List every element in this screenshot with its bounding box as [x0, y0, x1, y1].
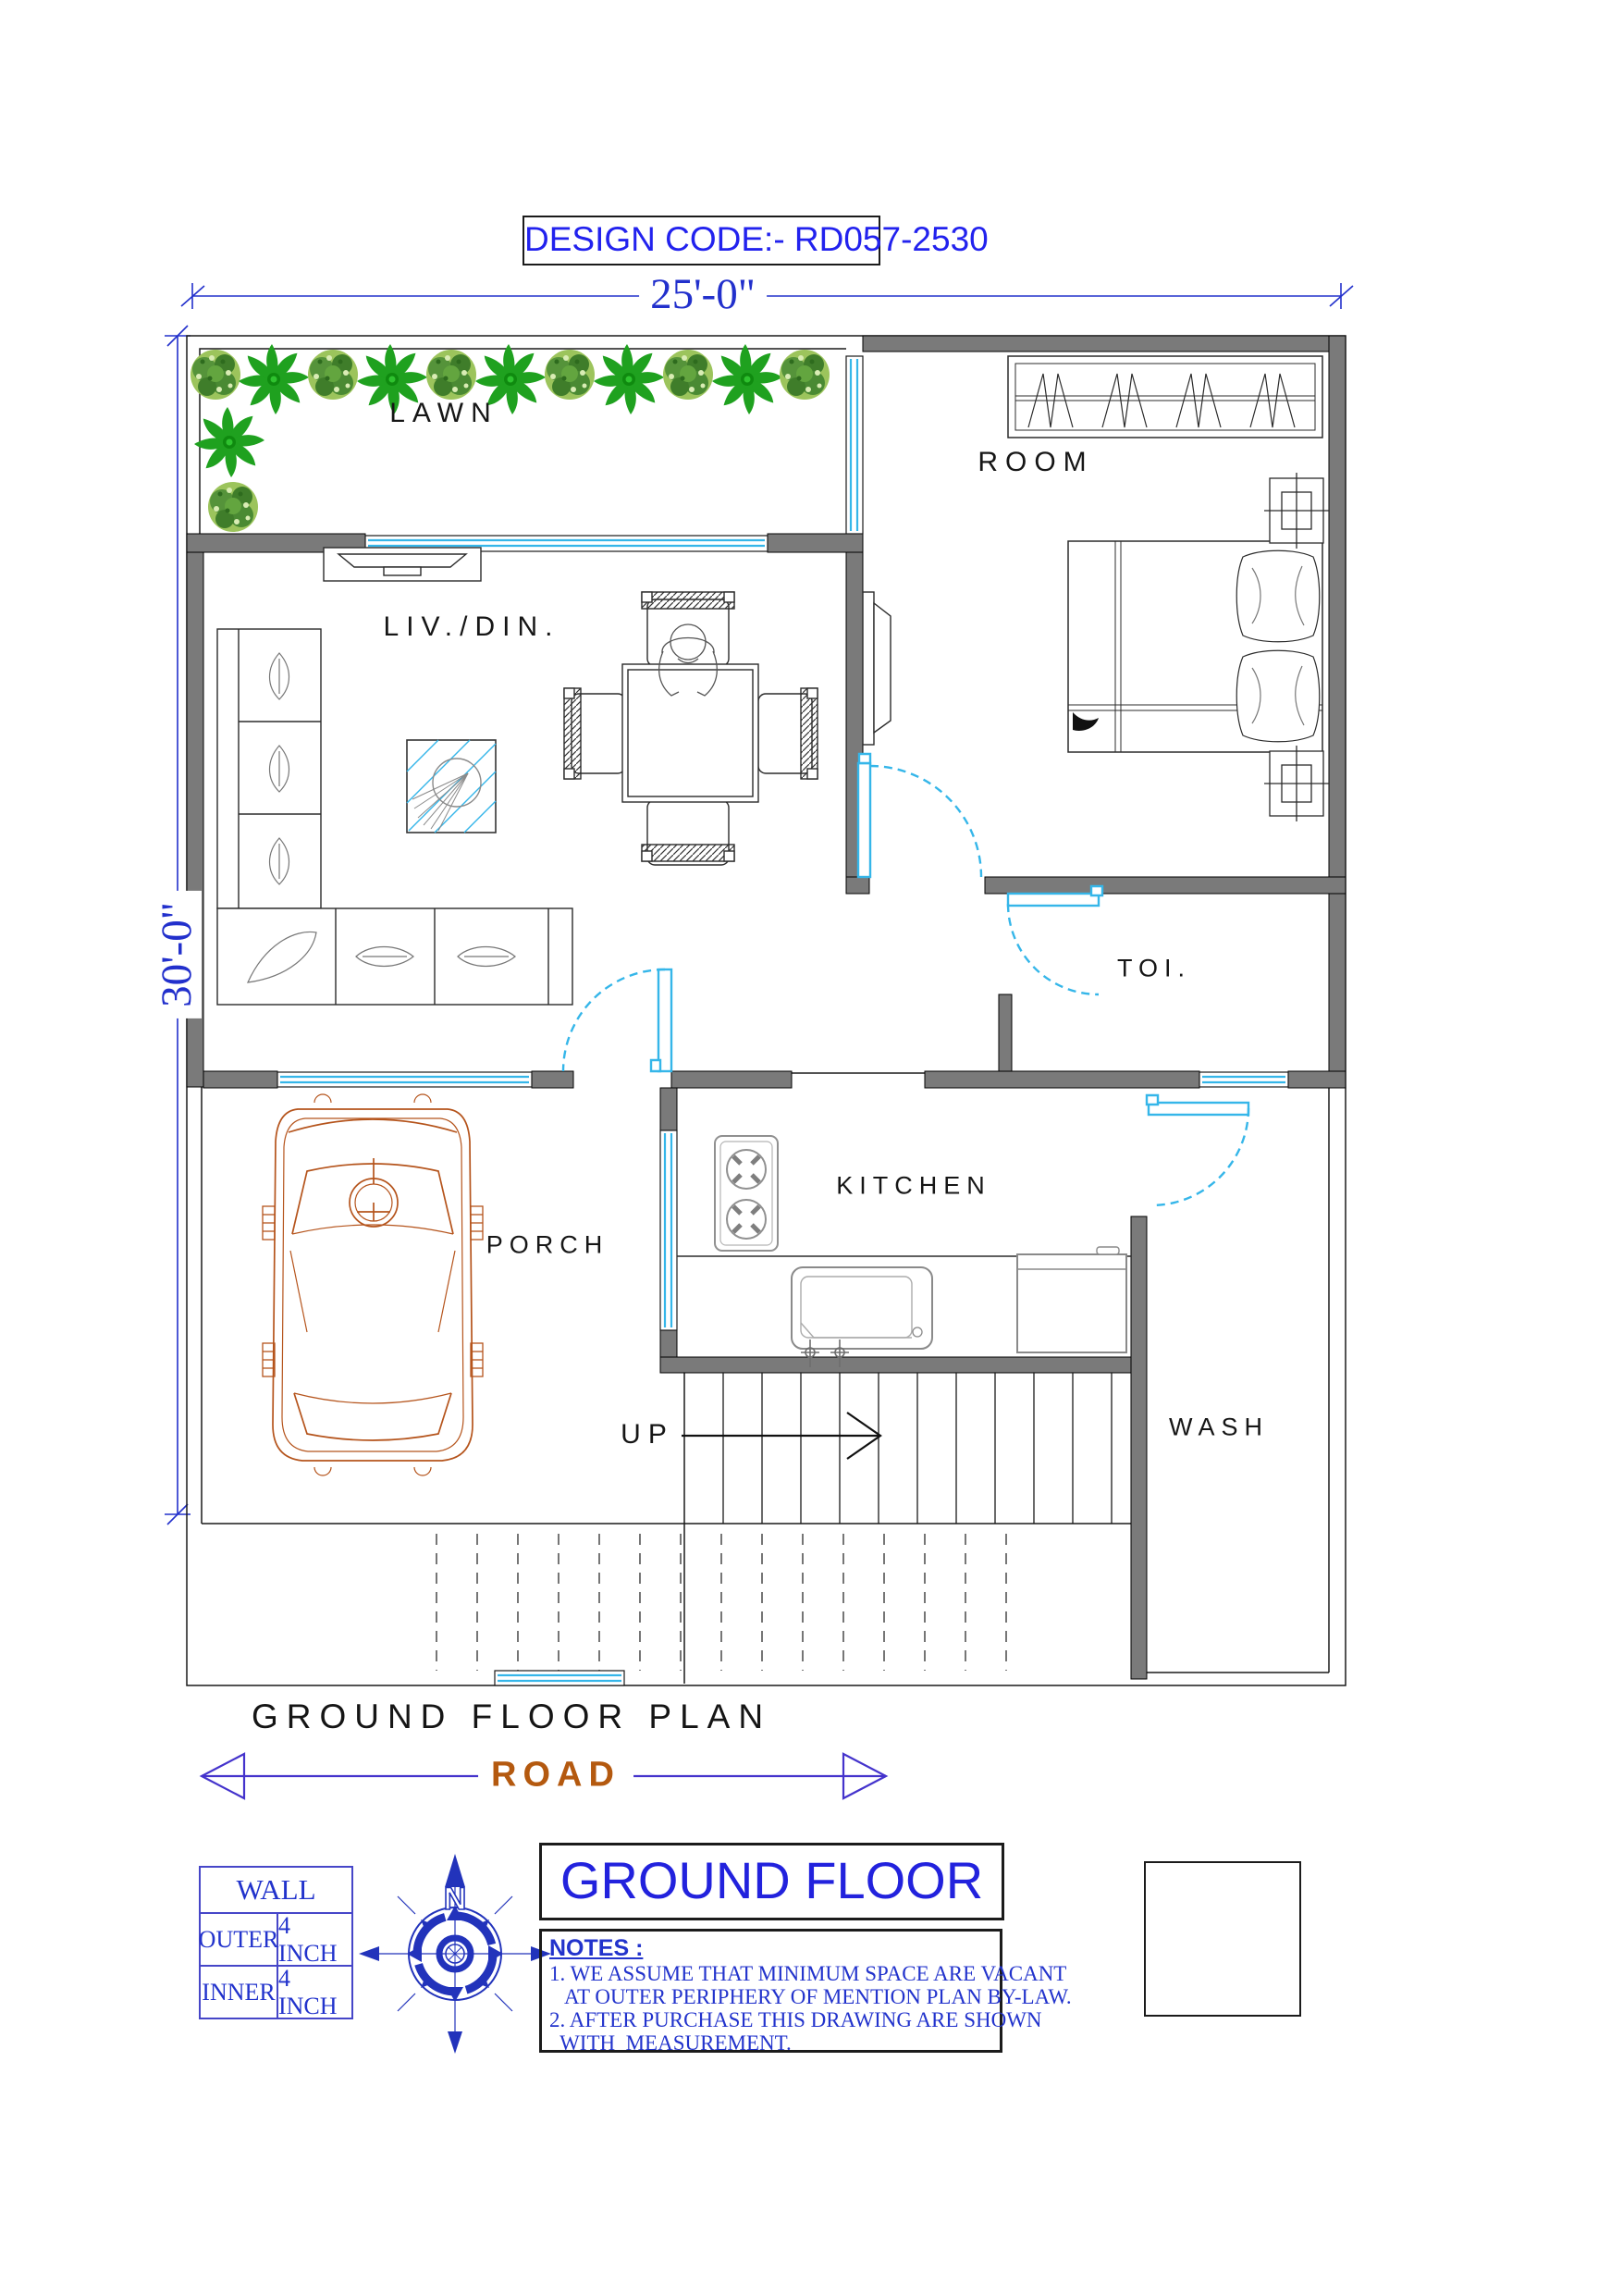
- bush-icon: [191, 350, 240, 400]
- wall-table-header: WALL: [201, 1868, 351, 1914]
- room-label-porch: PORCH: [486, 1231, 609, 1260]
- table-row: OUTER 4 INCH: [201, 1914, 351, 1967]
- up-arrow: [682, 1413, 880, 1459]
- compass-icon: N: [359, 1854, 551, 2054]
- road-label: ROAD: [478, 1756, 633, 1796]
- room-label-room: ROOM: [977, 447, 1093, 478]
- rug: [407, 740, 496, 833]
- room-label-wash: WASH: [1169, 1413, 1269, 1442]
- bed: [1068, 541, 1322, 752]
- stove-icon: [715, 1136, 778, 1251]
- stairs: [436, 1373, 1112, 1671]
- wardrobe: [1008, 356, 1322, 438]
- floor-title-box: GROUND FLOOR: [539, 1843, 1004, 1920]
- compass-north-label: N: [444, 1882, 467, 1917]
- washer-icon: [1017, 1247, 1126, 1352]
- car-icon: [263, 1094, 483, 1475]
- notes-box: NOTES : 1. WE ASSUME THAT MINIMUM SPACE …: [539, 1929, 1002, 2053]
- notes-line: AT OUTER PERIPHERY OF MENTION PLAN BY-LA…: [549, 1985, 1000, 2008]
- wall-inner-label: INNER: [201, 1967, 278, 2018]
- notes-line: 2. AFTER PURCHASE THIS DRAWING ARE SHOWN: [549, 2008, 1000, 2031]
- wall-inner-value: 4 INCH: [278, 1967, 351, 2018]
- room-label-kitchen: KITCHEN: [836, 1172, 991, 1201]
- dimension-lines: [165, 283, 1353, 1524]
- sink-icon: [792, 1267, 932, 1367]
- floor-plan-sheet: N Makan Ki Dukan DESIGN CODE:- RD057-253…: [0, 0, 1623, 2296]
- stairs-up-label: UP: [621, 1419, 674, 1450]
- table-row: INNER 4 INCH: [201, 1967, 351, 2018]
- room-label-living: LIV./DIN.: [384, 611, 560, 643]
- width-dimension: 25'-0": [639, 269, 767, 319]
- plan-title: GROUND FLOOR PLAN: [252, 1697, 771, 1736]
- sofa: [217, 629, 572, 1005]
- dining-set: [564, 592, 818, 865]
- wall-outer-value: 4 INCH: [278, 1914, 351, 1965]
- notes-line: WITH MEASUREMENT.: [549, 2031, 1000, 2055]
- wall-outer-label: OUTER: [201, 1914, 278, 1965]
- palm-icon: [194, 407, 264, 477]
- design-code-box: DESIGN CODE:- RD057-2530: [523, 216, 880, 265]
- wall-spec-table: WALL OUTER 4 INCH INNER 4 INCH: [199, 1866, 353, 2019]
- lawn-plants: [191, 344, 830, 532]
- notes-line: 1. WE ASSUME THAT MINIMUM SPACE ARE VACA…: [549, 1962, 1000, 1985]
- floor-title: GROUND FLOOR: [542, 1845, 1002, 1916]
- notes-heading: NOTES :: [549, 1935, 1000, 1962]
- wall-cabinet: [863, 592, 891, 745]
- room-label-toilet: TOI.: [1117, 955, 1191, 983]
- kitchen-counter: [677, 1247, 1131, 1367]
- height-dimension: 30'-0": [152, 891, 202, 1018]
- room-label-lawn: LAWN: [389, 398, 498, 429]
- tv-unit: [324, 548, 481, 581]
- logo-frame: [1144, 1861, 1301, 2017]
